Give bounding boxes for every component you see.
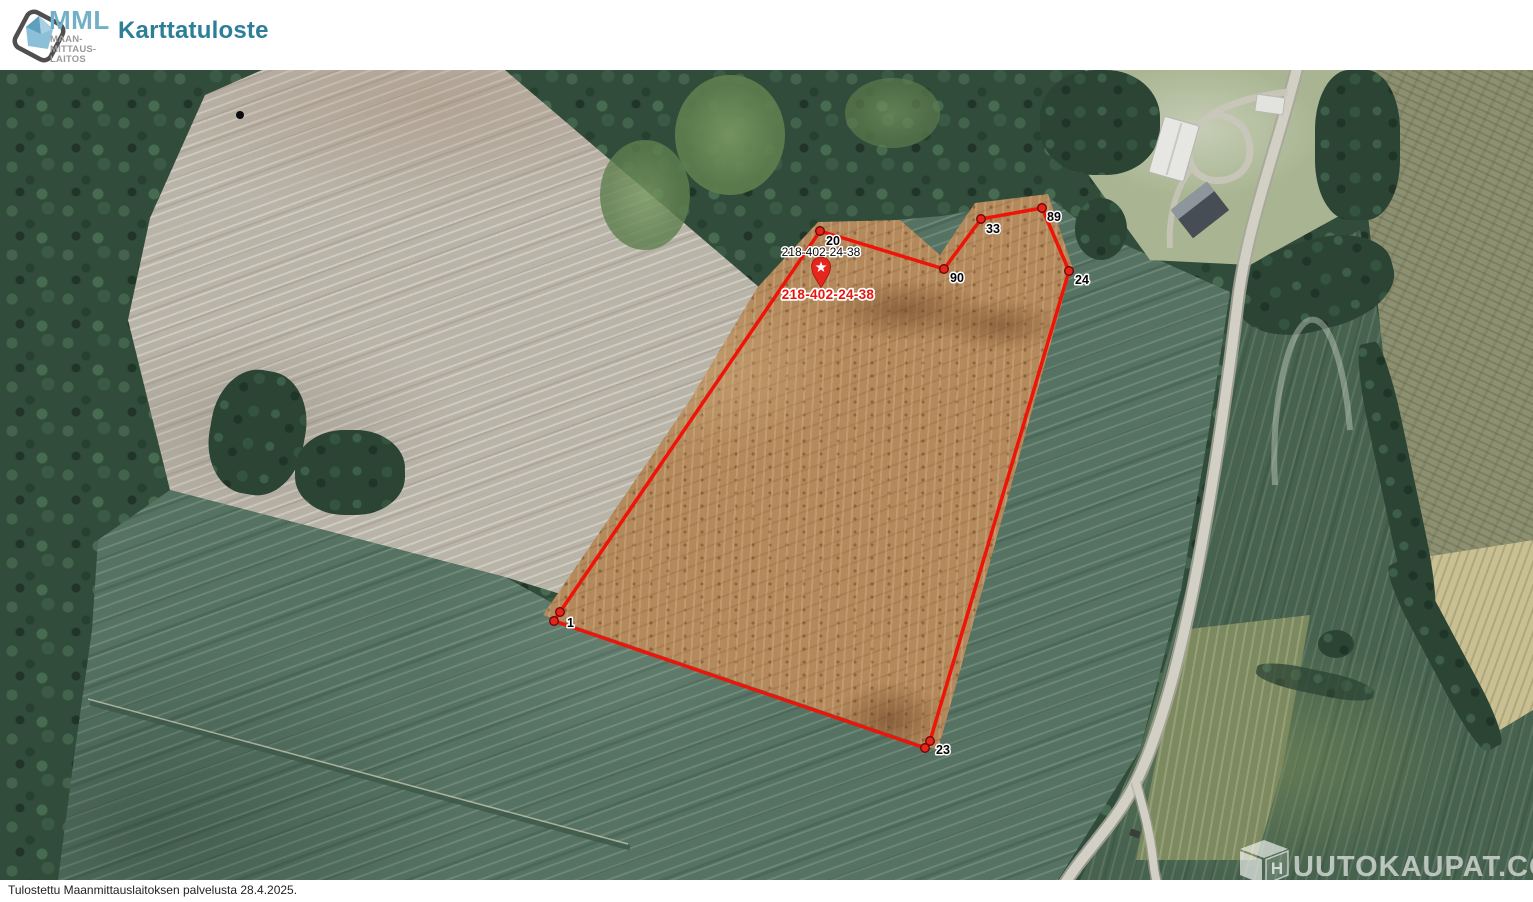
header-bar: MML MAAN- MITTAUS- LAITOS Karttatuloste — [0, 0, 1533, 70]
tree-single — [1318, 630, 1354, 658]
printed-note: Tulostettu Maanmittauslaitoksen palvelus… — [8, 883, 297, 897]
page-title: Karttatuloste — [118, 17, 269, 45]
deciduous-patch — [600, 140, 690, 250]
tree-cluster — [1075, 198, 1127, 260]
deciduous-patch — [845, 78, 940, 148]
tree-cluster — [295, 430, 405, 515]
logo-abbr: MML — [49, 5, 110, 36]
aerial-map: 20 33 89 90 24 1 23 218-402-24-38 218-40… — [0, 70, 1533, 880]
logo-line: LAITOS — [50, 55, 86, 65]
footer-bar: Tulostettu Maanmittauslaitoksen palvelus… — [0, 880, 1533, 902]
tree-cluster — [1040, 70, 1160, 175]
tree-cluster — [1315, 70, 1400, 220]
deciduous-patch — [675, 75, 785, 195]
